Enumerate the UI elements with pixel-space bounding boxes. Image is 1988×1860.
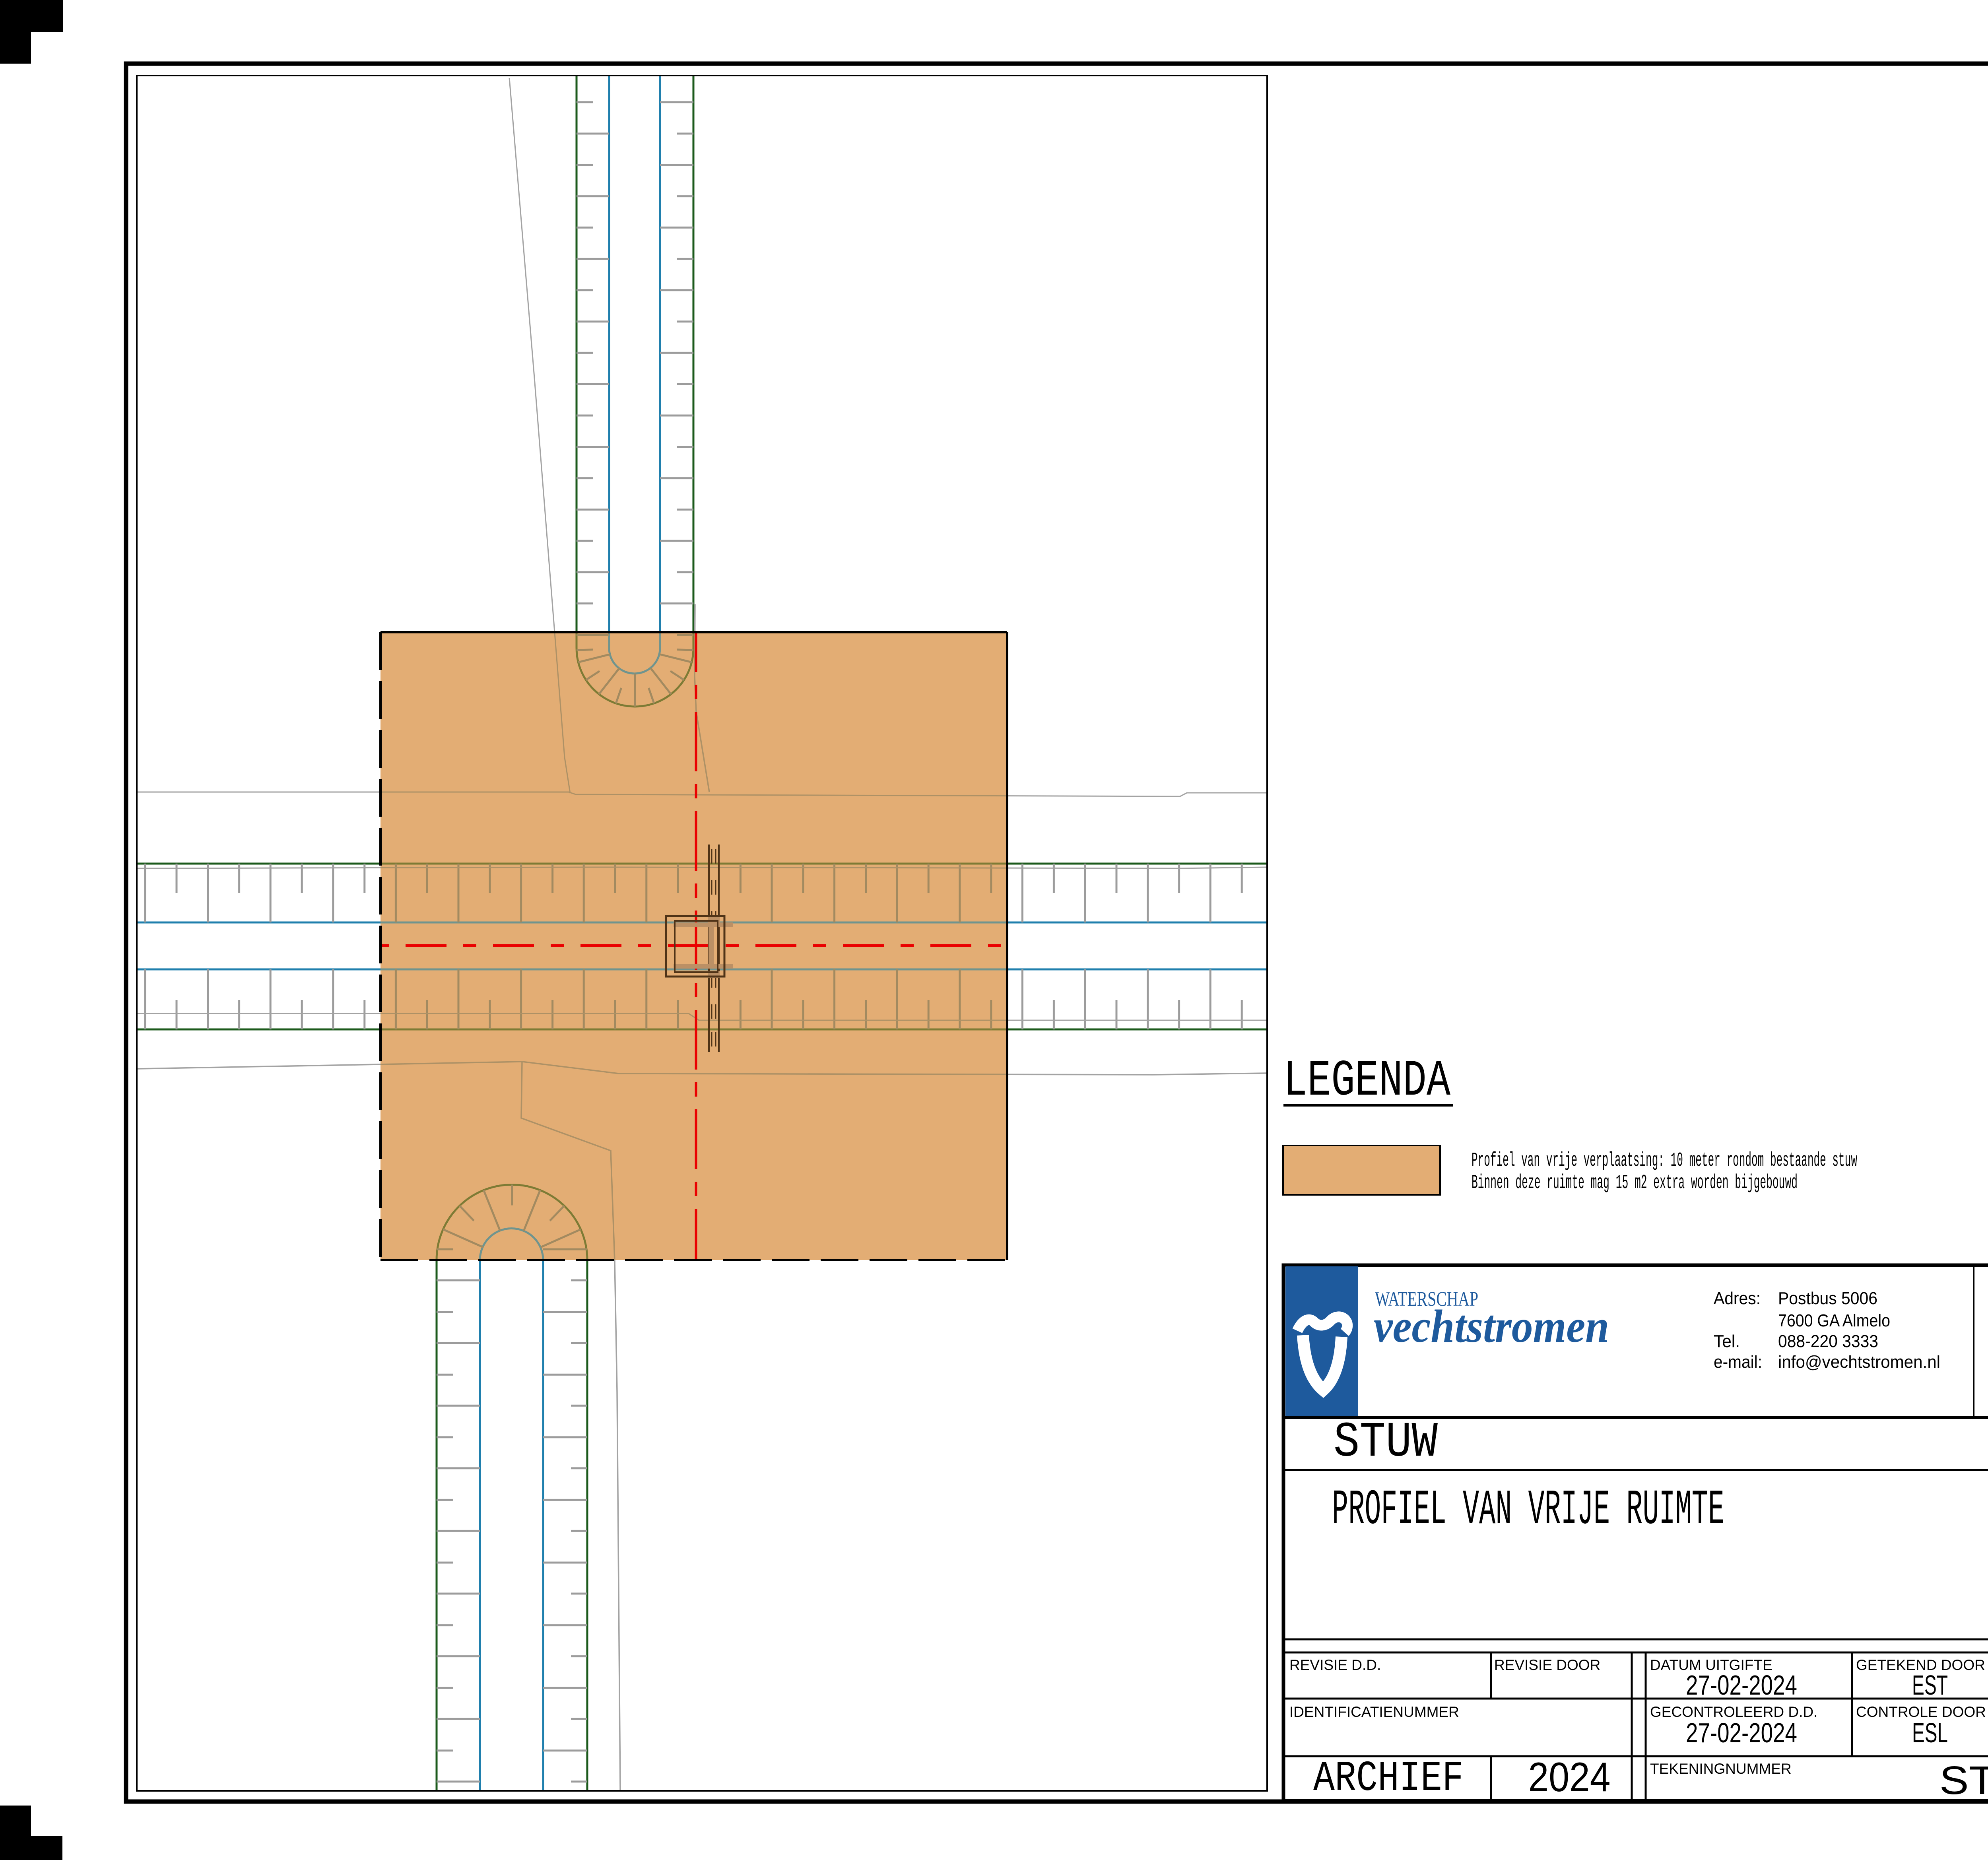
svg-text:REVISIE DOOR: REVISIE DOOR bbox=[1494, 1657, 1600, 1673]
svg-text:Tel.: Tel. bbox=[1714, 1332, 1740, 1351]
svg-text:ARCHIEF: ARCHIEF bbox=[1313, 1755, 1464, 1803]
svg-text:TEKENINGNUMMER: TEKENINGNUMMER bbox=[1650, 1761, 1792, 1777]
svg-text:IDENTIFICATIENUMMER: IDENTIFICATIENUMMER bbox=[1289, 1704, 1459, 1720]
svg-text:ST00000-O-24-C-001: ST00000-O-24-C-001 bbox=[1939, 1758, 1988, 1803]
svg-text:Binnen deze ruimte mag 15 m2 e: Binnen deze ruimte mag 15 m2 extra worde… bbox=[1472, 1172, 1798, 1194]
svg-text:EST: EST bbox=[1912, 1670, 1948, 1701]
svg-text:PROFIEL VAN VRIJE RUIMTE: PROFIEL VAN VRIJE RUIMTE bbox=[1332, 1483, 1724, 1538]
svg-text:ESL: ESL bbox=[1912, 1717, 1948, 1748]
svg-text:Adres:: Adres: bbox=[1714, 1289, 1761, 1308]
svg-text:STUW: STUW bbox=[1334, 1415, 1438, 1471]
svg-text:REVISIE D.D.: REVISIE D.D. bbox=[1289, 1657, 1381, 1673]
svg-text:27-02-2024: 27-02-2024 bbox=[1686, 1670, 1797, 1701]
svg-text:7600 GA Almelo: 7600 GA Almelo bbox=[1778, 1311, 1890, 1330]
svg-text:27-02-2024: 27-02-2024 bbox=[1686, 1717, 1797, 1748]
svg-text:info@vechtstromen.nl: info@vechtstromen.nl bbox=[1778, 1352, 1940, 1372]
svg-text:e-mail:: e-mail: bbox=[1714, 1352, 1762, 1372]
svg-text:LEGENDA: LEGENDA bbox=[1283, 1052, 1450, 1110]
svg-text:088-220 3333: 088-220 3333 bbox=[1778, 1332, 1878, 1351]
svg-text:vechtstromen: vechtstromen bbox=[1374, 1300, 1609, 1352]
svg-text:2024: 2024 bbox=[1528, 1754, 1611, 1800]
svg-text:Profiel van vrije verplaatsing: Profiel van vrije verplaatsing: 10 meter… bbox=[1472, 1149, 1857, 1172]
svg-text:Postbus 5006: Postbus 5006 bbox=[1778, 1289, 1877, 1308]
